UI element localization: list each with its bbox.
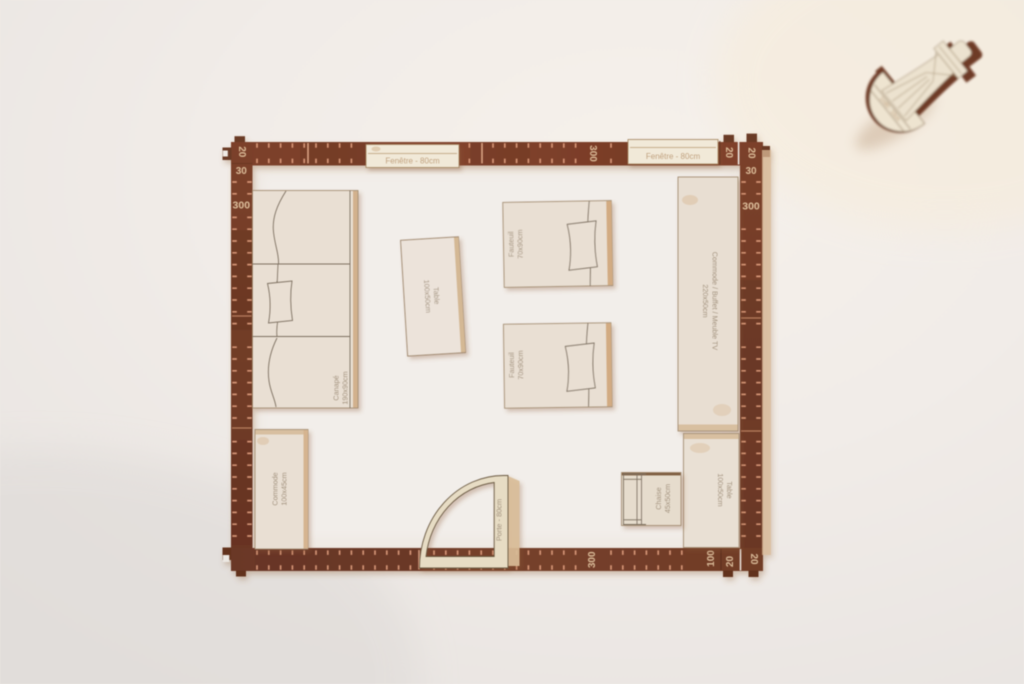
svg-text:Commode100x45cm: Commode100x45cm — [271, 472, 289, 505]
svg-text:Fenêtre - 80cm: Fenêtre - 80cm — [646, 152, 701, 161]
svg-text:300: 300 — [233, 200, 251, 212]
svg-text:20: 20 — [748, 553, 759, 565]
svg-text:Fauteuil70x90cm: Fauteuil70x90cm — [507, 350, 525, 379]
svg-text:Fenêtre - 80cm: Fenêtre - 80cm — [385, 157, 440, 166]
svg-text:20: 20 — [746, 147, 757, 159]
svg-text:20: 20 — [723, 147, 734, 159]
svg-text:300: 300 — [587, 145, 598, 162]
svg-text:300: 300 — [742, 201, 760, 213]
svg-text:Canapé190x90cm: Canapé190x90cm — [332, 371, 350, 404]
svg-text:Chaise45x50cm: Chaise45x50cm — [654, 484, 672, 513]
svg-text:Fauteuil70x90cm: Fauteuil70x90cm — [506, 229, 525, 258]
svg-text:20: 20 — [725, 556, 736, 568]
svg-text:100: 100 — [706, 550, 717, 567]
svg-text:20: 20 — [236, 146, 247, 158]
svg-text:300: 300 — [587, 551, 598, 568]
svg-text:30: 30 — [745, 166, 757, 177]
svg-text:30: 30 — [236, 166, 248, 177]
svg-text:Porte - 80cm: Porte - 80cm — [494, 499, 503, 541]
